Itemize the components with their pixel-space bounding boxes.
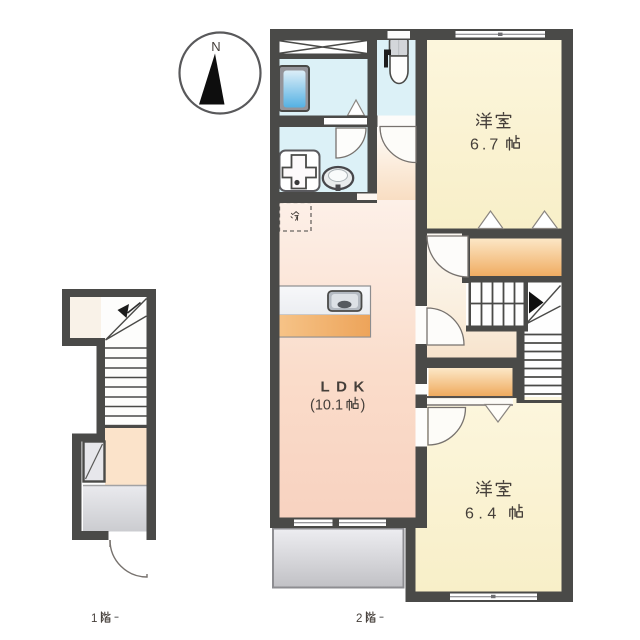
svg-text:N: N	[211, 39, 220, 54]
svg-text:2: 2	[356, 613, 363, 625]
svg-text:1: 1	[91, 613, 98, 625]
svg-text:LDK: LDK	[321, 379, 371, 396]
svg-text:(10.1: (10.1	[310, 398, 343, 414]
svg-text:): )	[361, 398, 366, 414]
svg-text:6.4: 6.4	[465, 506, 501, 523]
svg-text:6.7: 6.7	[470, 137, 501, 154]
